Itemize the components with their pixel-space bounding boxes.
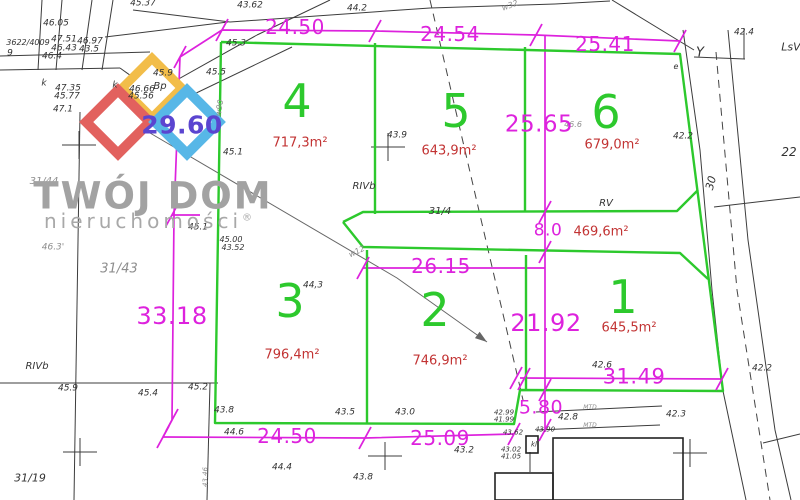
survey-label: 45.2	[188, 384, 208, 393]
map-line	[133, 10, 230, 22]
survey-label: k	[112, 82, 117, 91]
dimension-label: 31.49	[603, 367, 666, 388]
dimension-label: 33.18	[136, 304, 207, 328]
survey-label: 44.2	[347, 5, 367, 14]
map-line	[105, 22, 228, 37]
survey-label: RV	[599, 199, 613, 209]
dimension-label: 25.09	[410, 428, 470, 448]
survey-label: 31/4	[429, 207, 451, 217]
survey-label: RIVb	[352, 182, 375, 192]
survey-label: 46.05	[43, 20, 69, 29]
survey-label: 41.99	[494, 417, 514, 424]
map-line	[102, 0, 113, 70]
plot-boundary-line	[343, 190, 698, 222]
survey-label: 43.46	[203, 467, 210, 487]
plot-number: 3	[275, 278, 304, 324]
arrowhead-icon	[475, 332, 489, 346]
survey-label: 43.62	[237, 2, 263, 11]
building-outline	[553, 438, 683, 500]
dashed-boundary-line	[430, 0, 523, 400]
survey-label: 45.9	[58, 385, 78, 394]
building-outline	[495, 473, 553, 500]
plot-number: 5	[441, 88, 470, 134]
agency-logo-subtitle: nieruchomości®	[44, 209, 252, 233]
map-line	[555, 1, 610, 4]
survey-label: 43.90	[535, 427, 555, 434]
dimension-label: 24.54	[420, 24, 480, 44]
survey-label: 45.56	[128, 93, 154, 102]
survey-label: 42.2	[673, 133, 693, 142]
agency-logo-subtitle-text: nieruchomości	[44, 209, 242, 233]
survey-label: RIVb	[25, 362, 48, 372]
survey-label: 47.1	[53, 106, 73, 115]
survey-label: 42.3	[666, 411, 686, 420]
dimension-label: 8.0	[534, 223, 563, 240]
survey-label: 31/19	[14, 473, 46, 484]
plot-number: 1	[608, 274, 637, 320]
dashed-boundary-line	[716, 52, 770, 500]
survey-label: 43.52	[222, 244, 245, 252]
plot-area-label: 796,4m²	[264, 349, 319, 362]
survey-label: 45.1	[223, 149, 243, 158]
map-line	[82, 0, 92, 70]
survey-label: e	[674, 63, 679, 71]
plot-number: 6	[591, 89, 620, 135]
dimension-label: 29.60	[141, 113, 223, 138]
survey-label: k	[41, 80, 46, 89]
survey-label: 45.77	[54, 93, 80, 102]
dimension-label: 21.92	[510, 311, 581, 335]
plot-area-label: 645,5m²	[601, 322, 656, 335]
map-line	[714, 197, 800, 207]
survey-label: 9	[7, 50, 13, 59]
survey-label: 45.3	[226, 40, 246, 49]
plot-area-label: 746,9m²	[412, 355, 467, 368]
registered-mark-icon: ®	[242, 212, 252, 223]
survey-label: 43.9	[387, 132, 407, 141]
plot-area-label: 717,3m²	[272, 137, 327, 150]
survey-label: 44,3	[303, 282, 323, 291]
survey-label: 45.4	[138, 390, 158, 399]
survey-label: Bp	[153, 82, 166, 92]
survey-label: 44.6	[224, 429, 244, 438]
map-linework	[0, 0, 800, 500]
dimension-label: 25.65	[505, 114, 573, 137]
cadastral-plot-map: 45.3746.053622/400947.5146.9746.4343.594…	[0, 0, 800, 500]
map-line	[74, 112, 80, 500]
survey-label: MTD	[583, 405, 596, 411]
dimension-label: 24.50	[265, 17, 325, 37]
survey-label: 43.8	[353, 474, 373, 483]
dimension-label: 24.50	[257, 426, 317, 446]
survey-label: 45.37	[130, 0, 156, 9]
dimension-label: 25.41	[575, 34, 635, 54]
plot-number: 4	[282, 78, 311, 124]
survey-label: 43.5	[335, 409, 355, 418]
dimension-label: 5.80	[519, 399, 563, 418]
survey-label: 42.2	[752, 365, 772, 374]
survey-label: 22	[781, 146, 796, 158]
survey-label: 42.4	[734, 29, 754, 38]
plot-number: 2	[420, 287, 449, 333]
survey-label: 43.0	[395, 409, 415, 418]
survey-label: 41.05	[501, 454, 521, 461]
survey-label: 45.9	[153, 70, 173, 79]
survey-label: MTD	[583, 423, 596, 429]
map-line	[430, 4, 555, 8]
road-edge-line	[728, 30, 791, 500]
plot-area-label: 643,9m²	[421, 145, 476, 158]
survey-label: 44.4	[272, 464, 292, 473]
survey-label: 43.8	[214, 407, 234, 416]
map-line	[763, 434, 800, 443]
survey-label: 30	[704, 175, 718, 191]
survey-label: 46.4	[42, 53, 62, 62]
survey-label: 43.5	[79, 46, 99, 55]
survey-label: 46.3'	[42, 244, 65, 253]
plot-area-label: 679,0m²	[584, 139, 639, 152]
survey-label: Y	[696, 47, 704, 60]
survey-label: 3622/4009	[6, 39, 49, 47]
survey-label: 45.5	[206, 69, 226, 78]
survey-label: 31/43	[100, 263, 137, 276]
road-area-label: 469,6m²	[573, 226, 628, 239]
survey-label: kl	[531, 442, 537, 449]
survey-label: 43.62	[503, 430, 523, 437]
dimension-label: 26.15	[411, 256, 471, 276]
survey-label: LsV	[781, 42, 800, 53]
